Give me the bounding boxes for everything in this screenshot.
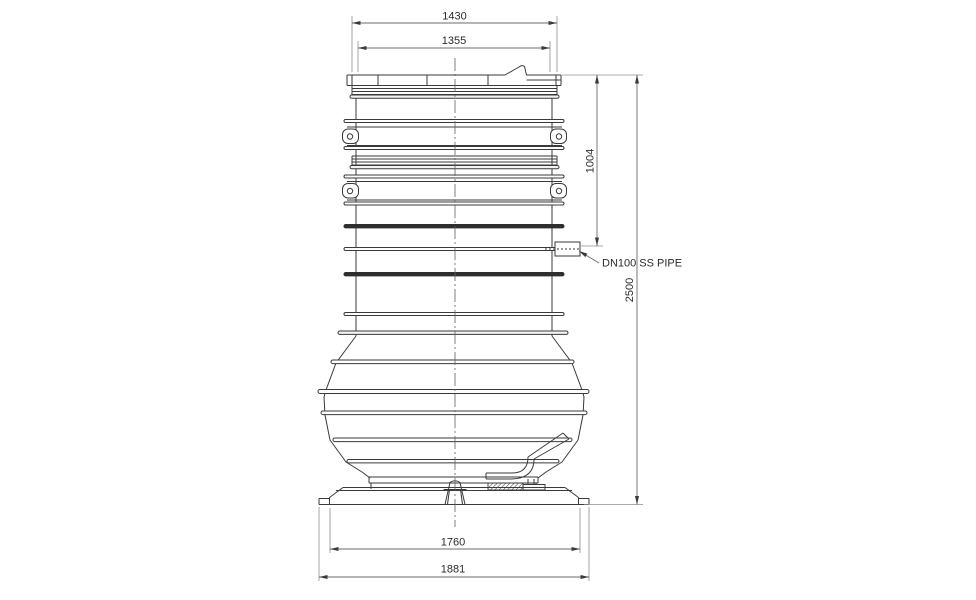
- bell-rib: [321, 411, 587, 415]
- tank-bell: [318, 336, 589, 489]
- lifting-lug-left: [343, 129, 359, 144]
- lid-seat-ring: [350, 95, 559, 98]
- discharge-pedestal: [488, 483, 523, 490]
- dim-text-lid-outer-width: 1430: [442, 11, 466, 23]
- dim-text-lid-inner-width: 1355: [442, 35, 466, 47]
- tank-shaft: [338, 98, 568, 336]
- shaft-rib: [338, 331, 568, 334]
- shaft-rib: [344, 202, 564, 205]
- dimension-base-inner-width: 1760: [330, 508, 580, 553]
- shaft-rib: [344, 120, 564, 123]
- drawing-canvas: 1430 1355 1004 2500 DN100 SS PIPE: [0, 0, 976, 600]
- dim-text-base-inner-width: 1760: [441, 537, 465, 549]
- shaft-rib: [344, 273, 564, 276]
- dim-text-base-outer-width: 1881: [441, 564, 465, 576]
- bell-bottom-ring: [369, 477, 538, 483]
- bell-wall-right: [538, 336, 584, 478]
- lifting-lug-right: [551, 184, 567, 199]
- shaft-walls: [356, 98, 552, 336]
- dimension-overall-height: 2500: [584, 75, 643, 505]
- lug-band-lower: [343, 182, 567, 201]
- shaft-rib: [344, 225, 564, 228]
- dim-text-inlet-pipe-height: 1004: [585, 149, 597, 173]
- dn100-pipe-stub: [545, 242, 580, 256]
- inlet-pipe-label: DN100 SS PIPE: [602, 258, 682, 270]
- guide-rail: [528, 433, 569, 459]
- shaft-rib: [344, 313, 564, 316]
- base-slab: [319, 488, 589, 505]
- shaft-rib: [344, 147, 564, 150]
- dimension-inlet-pipe-height: 1004: [581, 75, 603, 246]
- dim-text-overall-height: 2500: [624, 278, 636, 302]
- bell-wall-left: [324, 336, 370, 478]
- lug-band-upper: [343, 127, 567, 146]
- bell-rib: [333, 438, 572, 442]
- pump-internals: [444, 433, 570, 505]
- bell-rib: [331, 360, 574, 364]
- tank-lid: [347, 66, 561, 99]
- discharge-pipe: [486, 473, 512, 479]
- corrugated-joint-band: [350, 156, 559, 169]
- bell-rib: [318, 390, 589, 394]
- shaft-rib: [344, 175, 564, 178]
- lifting-lug-right: [551, 129, 567, 144]
- dimension-lid-inner-width: 1355: [358, 35, 550, 72]
- shaft-rib: [344, 248, 564, 251]
- lifting-lug-left: [343, 184, 359, 199]
- inlet-pipe-callout: DN100 SS PIPE: [579, 251, 682, 270]
- technical-drawing: 1430 1355 1004 2500 DN100 SS PIPE: [0, 0, 976, 600]
